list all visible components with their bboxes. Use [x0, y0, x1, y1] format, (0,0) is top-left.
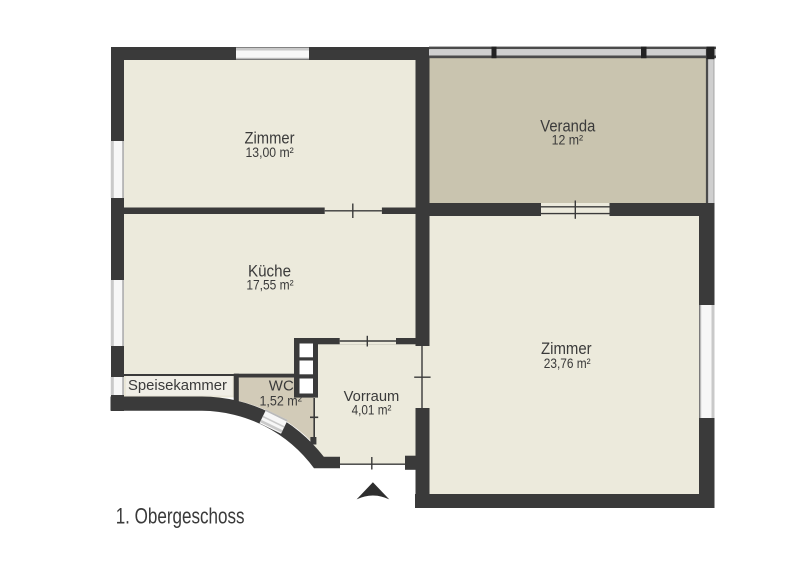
svg-text:12 m²: 12 m²	[552, 133, 584, 148]
svg-text:WC: WC	[269, 377, 294, 394]
svg-text:4,01 m²: 4,01 m²	[352, 403, 392, 418]
svg-text:1,52 m²: 1,52 m²	[259, 394, 302, 409]
svg-text:17,55 m²: 17,55 m²	[246, 277, 294, 292]
svg-text:13,00 m²: 13,00 m²	[246, 145, 295, 160]
svg-text:1. Obergeschoss: 1. Obergeschoss	[116, 504, 245, 529]
svg-text:Speisekammer: Speisekammer	[128, 377, 227, 394]
svg-text:23,76 m²: 23,76 m²	[544, 356, 591, 371]
